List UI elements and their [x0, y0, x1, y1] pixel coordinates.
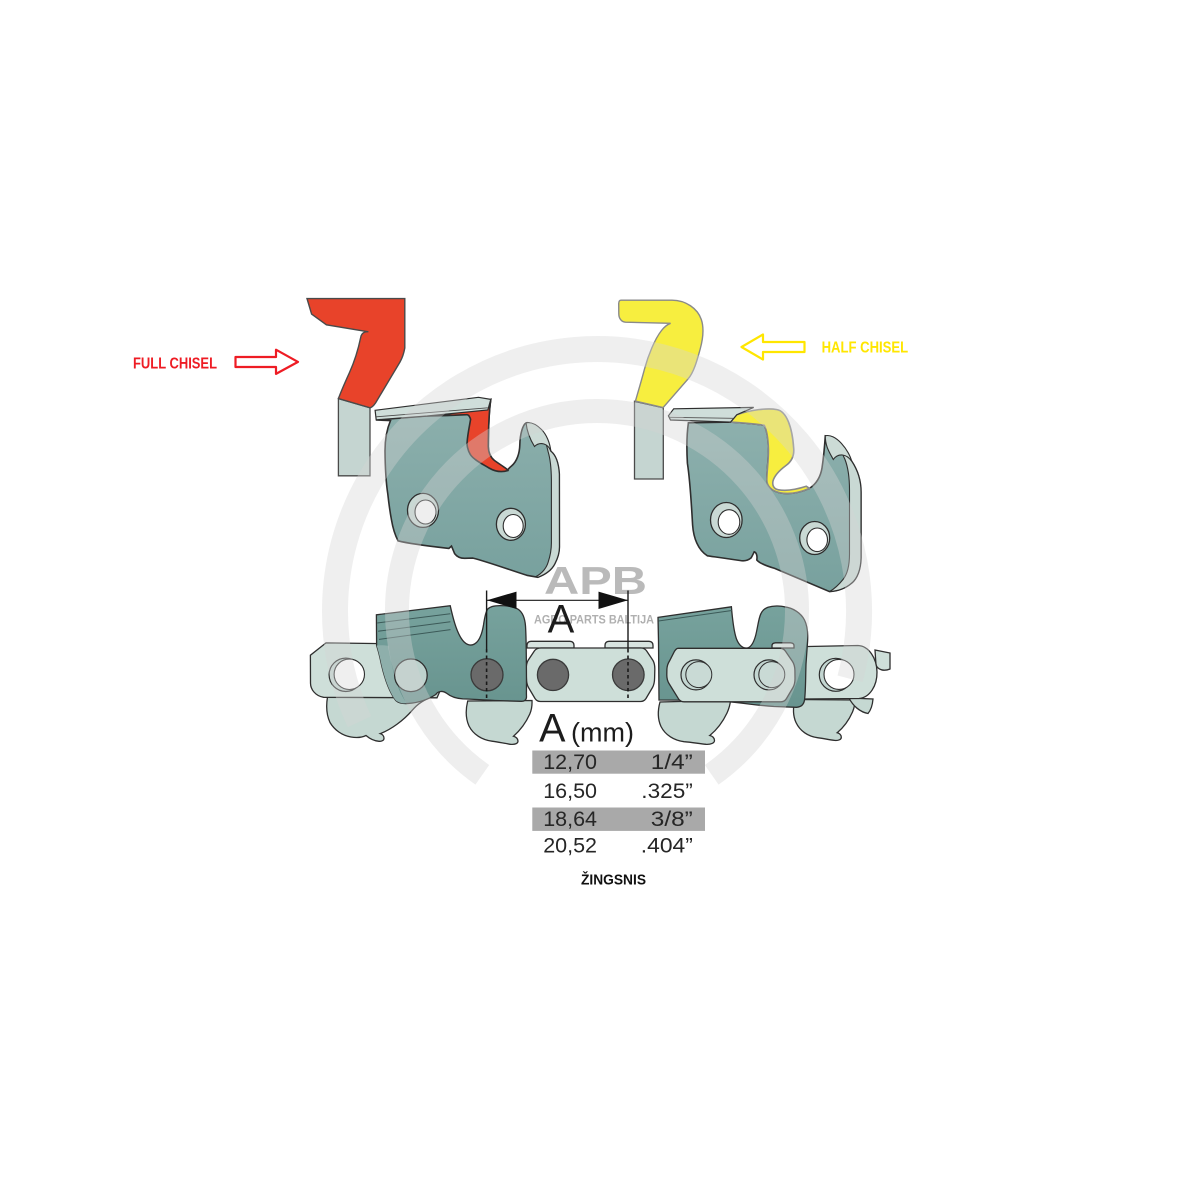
svg-text:16,50: 16,50 — [543, 779, 597, 803]
svg-text:(mm): (mm) — [571, 717, 634, 747]
svg-text:A: A — [539, 706, 566, 750]
svg-text:20,52: 20,52 — [543, 834, 597, 858]
svg-text:ŽINGSNIS: ŽINGSNIS — [581, 871, 646, 889]
svg-text:.404”: .404” — [641, 834, 693, 858]
svg-text:12,70: 12,70 — [543, 750, 597, 774]
svg-text:3/8”: 3/8” — [651, 807, 693, 831]
svg-text:FULL CHISEL: FULL CHISEL — [133, 355, 217, 372]
svg-text:HALF CHISEL: HALF CHISEL — [822, 339, 909, 356]
svg-text:APB: APB — [544, 560, 647, 603]
svg-text:A: A — [548, 598, 575, 642]
svg-text:1/4”: 1/4” — [651, 750, 693, 774]
svg-text:.325”: .325” — [641, 779, 693, 803]
svg-text:18,64: 18,64 — [543, 807, 597, 831]
